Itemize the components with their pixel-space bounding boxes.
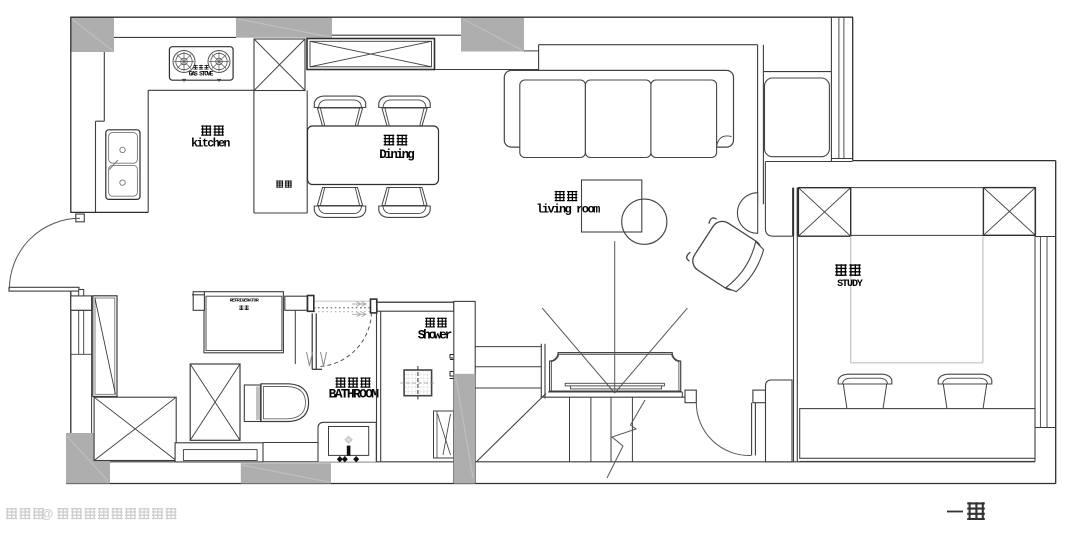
svg-text:REFRIGERATOR: REFRIGERATOR	[230, 298, 259, 304]
svg-text:STUDY: STUDY	[837, 279, 863, 290]
svg-text:Dining: Dining	[379, 148, 414, 162]
svg-text:GAS STOVE: GAS STOVE	[189, 71, 214, 78]
svg-text:kitchen: kitchen	[191, 138, 230, 151]
svg-text:BATHROOM: BATHROOM	[329, 387, 380, 402]
svg-text:living room: living room	[536, 203, 600, 217]
svg-text:@: @	[41, 506, 54, 521]
svg-text:Shower: Shower	[418, 329, 452, 343]
